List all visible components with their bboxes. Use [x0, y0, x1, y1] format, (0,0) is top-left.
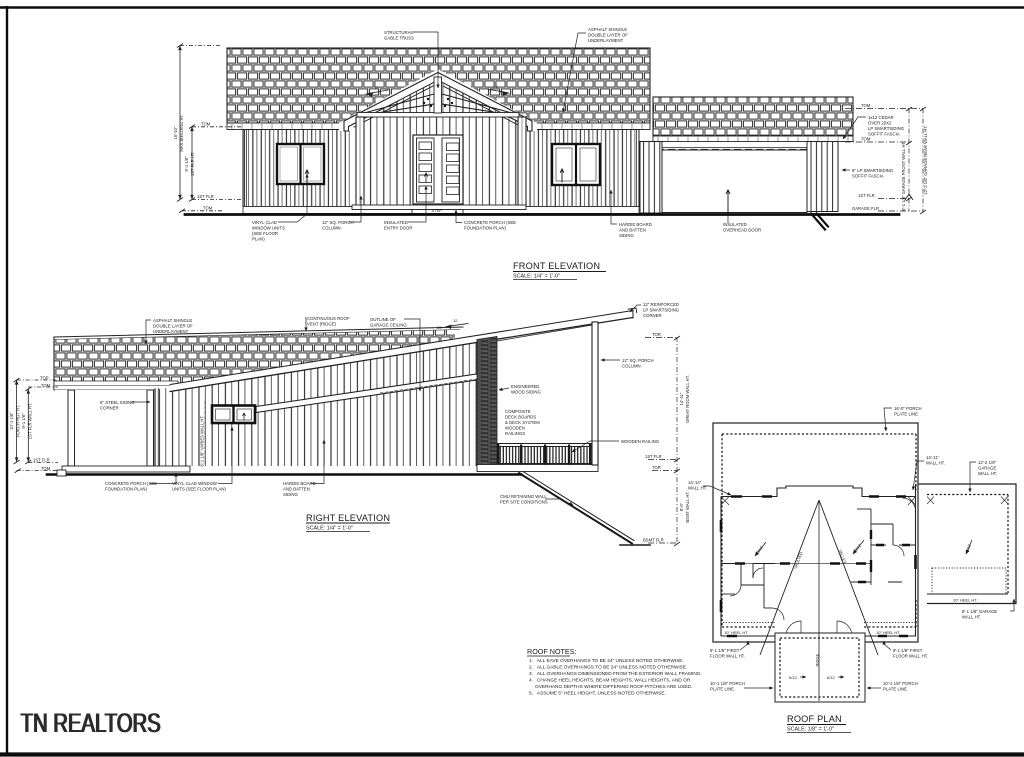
- svg-text:RAILINGS: RAILINGS: [505, 431, 525, 436]
- svg-text:PLATE LINE: PLATE LINE: [710, 687, 734, 692]
- svg-text:FOUNDATION PLAN): FOUNDATION PLAN): [464, 226, 507, 231]
- svg-text:1ST FLR: 1ST FLR: [33, 458, 50, 463]
- svg-text:ASPHALT SHINGLE: ASPHALT SHINGLE: [588, 27, 627, 32]
- svg-text:WOODEN: WOODEN: [505, 426, 525, 431]
- svg-text:DECK BOARDS: DECK BOARDS: [505, 415, 536, 420]
- svg-text:9'-1 1/8" FIRST: 9'-1 1/8" FIRST: [710, 648, 740, 653]
- svg-text:GARAGE: GARAGE: [978, 466, 997, 471]
- svg-text:OVERHANG DEPTHS WHERE DIFFERIN: OVERHANG DEPTHS WHERE DIFFERING ROOF PIT…: [535, 684, 692, 690]
- svg-text:SCALE: 1/8" = 1'-0": SCALE: 1/8" = 1'-0": [787, 727, 834, 733]
- svg-text:UNITS (SEE FLOOR PLAN): UNITS (SEE FLOOR PLAN): [172, 487, 227, 492]
- svg-text:3. ALL OVERHANGS DIMENSIONED: 3. ALL OVERHANGS DIMENSIONED FROM THE EX…: [529, 671, 702, 677]
- svg-text:10'-1 1/8" PORCH: 10'-1 1/8" PORCH: [710, 681, 745, 686]
- svg-text:10" HEEL HT.: 10" HEEL HT.: [953, 598, 977, 603]
- svg-text:STEP: STEP: [432, 208, 443, 213]
- svg-text:UNDERLAYMENT: UNDERLAYMENT: [588, 38, 624, 43]
- svg-text:12'-2 1/8": 12'-2 1/8": [978, 460, 997, 465]
- svg-text:TOR: TOR: [652, 465, 661, 470]
- svg-text:ROOF PLAN: ROOF PLAN: [787, 714, 842, 724]
- svg-text:GARAGE FLR: GARAGE FLR: [852, 206, 879, 211]
- svg-text:12: 12: [453, 318, 458, 323]
- svg-text:10'-1 1/8" PORCH: 10'-1 1/8" PORCH: [883, 681, 918, 686]
- svg-text:12" SQ. PORCH: 12" SQ. PORCH: [622, 358, 654, 363]
- svg-text:SCALE: 1/4" = 1'-0": SCALE: 1/4" = 1'-0": [306, 526, 353, 532]
- svg-text:9'-1 1/8": 9'-1 1/8": [21, 413, 26, 429]
- svg-text:8'-1 1/8" VARIES WALL HT.: 8'-1 1/8" VARIES WALL HT.: [200, 415, 205, 466]
- svg-text:TOM: TOM: [203, 206, 213, 211]
- svg-text:CONTINUOUS ROOF: CONTINUOUS ROOF: [307, 316, 350, 321]
- svg-text:VINYL CLAD WINDOW: VINYL CLAD WINDOW: [172, 481, 218, 486]
- svg-text:6/12: 6/12: [827, 675, 836, 680]
- svg-text:STRUCTURAL: STRUCTURAL: [384, 30, 413, 35]
- svg-text:16'-10": 16'-10": [173, 126, 178, 140]
- svg-text:PLAN): PLAN): [252, 237, 265, 242]
- svg-text:SIDING: SIDING: [283, 492, 298, 497]
- svg-text:HARDIE BOARD: HARDIE BOARD: [619, 222, 652, 227]
- svg-text:MAX BUILDING HT.: MAX BUILDING HT.: [179, 114, 184, 151]
- svg-text:CORNER: CORNER: [100, 406, 119, 411]
- svg-text:(SEE FLOOR: (SEE FLOOR: [252, 231, 278, 236]
- svg-text:PLATE LINE: PLATE LINE: [883, 687, 907, 692]
- svg-text:TOM: TOM: [861, 103, 871, 108]
- svg-text:INSULATED: INSULATED: [723, 222, 747, 227]
- svg-text:COLUMN: COLUMN: [322, 226, 341, 231]
- svg-text:VINYL CLAD: VINYL CLAD: [252, 220, 277, 225]
- svg-text:UNDERLAYMENT: UNDERLAYMENT: [153, 329, 189, 334]
- svg-text:DOUBLE LAYER OF: DOUBLE LAYER OF: [588, 33, 628, 38]
- svg-text:FLOOR WALL HT.: FLOOR WALL HT.: [710, 654, 745, 659]
- svg-text:ENGINEERED: ENGINEERED: [511, 384, 539, 389]
- svg-text:CORNER: CORNER: [643, 313, 662, 318]
- svg-text:FRONT ELEVATION: FRONT ELEVATION: [513, 261, 600, 271]
- svg-text:1ST FLR WALL HT.: 1ST FLR WALL HT.: [28, 403, 33, 439]
- svg-text:5. ASSUME 5" HEEL HEIGHT, UN: 5. ASSUME 5" HEEL HEIGHT, UNLESS NOTED O…: [529, 691, 666, 697]
- svg-text:ENTRY DOOR: ENTRY DOOR: [384, 226, 413, 231]
- svg-text:FLOOR WALL HT.: FLOOR WALL HT.: [893, 654, 928, 659]
- svg-text:TOM: TOM: [201, 122, 211, 127]
- svg-text:WINDOW UNITS: WINDOW UNITS: [252, 226, 285, 231]
- svg-text:FOUNDATION PLAN): FOUNDATION PLAN): [105, 487, 148, 492]
- svg-text:VENT (RIDGE): VENT (RIDGE): [307, 322, 337, 327]
- svg-text:1x12 CEDAR: 1x12 CEDAR: [868, 115, 894, 120]
- svg-text:INSULATED: INSULATED: [384, 220, 408, 225]
- svg-text:WALL HT.: WALL HT.: [978, 471, 997, 476]
- svg-text:TN REALTORS: TN REALTORS: [21, 708, 161, 738]
- svg-text:1ST FLR HT.: 1ST FLR HT.: [190, 152, 195, 176]
- svg-text:12: 12: [374, 85, 379, 90]
- svg-text:8'-0": 8'-0": [679, 502, 684, 511]
- svg-text:WALL HT.: WALL HT.: [926, 461, 945, 466]
- svg-text:4. CHANGE HEEL HEIGHTS, BEAM: 4. CHANGE HEEL HEIGHTS, BEAM HEIGHTS, WA…: [529, 678, 691, 684]
- svg-text:COLUMN: COLUMN: [622, 364, 641, 369]
- svg-text:& DECK SYSTEM: & DECK SYSTEM: [505, 420, 540, 425]
- svg-text:SOFFIT FASCIA: SOFFIT FASCIA: [852, 174, 884, 179]
- svg-text:GARAGE CEILING: GARAGE CEILING: [370, 323, 407, 328]
- svg-text:WALL HT.: WALL HT.: [962, 615, 981, 620]
- svg-text:14'-11": 14'-11": [926, 455, 939, 460]
- svg-text:CONCRETE PORCH (SEE: CONCRETE PORCH (SEE: [464, 220, 516, 225]
- svg-text:TOM: TOM: [41, 383, 51, 388]
- svg-text:ROOF NOTES:: ROOF NOTES:: [527, 647, 577, 656]
- svg-text:9'-1 1/8" FIRST: 9'-1 1/8" FIRST: [893, 648, 923, 653]
- svg-text:CMU RETAINING WALL: CMU RETAINING WALL: [500, 494, 547, 499]
- svg-text:COMPOSITE: COMPOSITE: [505, 409, 531, 414]
- svg-text:1ST FLR: 1ST FLR: [858, 193, 875, 198]
- svg-text:BSMT FLR: BSMT FLR: [643, 538, 664, 543]
- svg-text:8" STEEL SIDING: 8" STEEL SIDING: [100, 400, 135, 405]
- svg-text:14'-14": 14'-14": [688, 480, 702, 485]
- svg-text:LP SMARTSIDING: LP SMARTSIDING: [868, 126, 905, 131]
- svg-text:12" SQ. PORCH: 12" SQ. PORCH: [322, 220, 354, 225]
- svg-text:16'-0" PORCH: 16'-0" PORCH: [894, 406, 922, 411]
- svg-text:WOODEN RAILING: WOODEN RAILING: [621, 439, 660, 444]
- svg-text:8" LP SMARTSIDING: 8" LP SMARTSIDING: [852, 168, 894, 173]
- svg-text:SIDING: SIDING: [619, 233, 634, 238]
- svg-text:TOM: TOM: [861, 137, 871, 142]
- svg-text:TOM: TOM: [41, 466, 51, 471]
- svg-text:ASPHALT SHINGLE: ASPHALT SHINGLE: [153, 318, 192, 323]
- svg-text:9'-1 1/8": 9'-1 1/8": [184, 156, 189, 172]
- svg-text:GABLE TRUSS: GABLE TRUSS: [384, 36, 414, 41]
- svg-text:12" REINFORCED: 12" REINFORCED: [643, 302, 679, 307]
- svg-text:8'-1 1/8" GARAGE: 8'-1 1/8" GARAGE: [962, 609, 997, 614]
- svg-text:AND BATTEN: AND BATTEN: [283, 487, 310, 492]
- svg-text:AND BATTEN: AND BATTEN: [619, 228, 646, 233]
- svg-text:RIGHT ELEVATION: RIGHT ELEVATION: [306, 513, 390, 523]
- svg-text:1ST FLR: 1ST FLR: [645, 454, 662, 459]
- svg-text:PER SITE CONDITIONS: PER SITE CONDITIONS: [500, 500, 548, 505]
- svg-text:1ST FLR: 1ST FLR: [197, 194, 214, 199]
- svg-text:1. ALL EAVE OVERHANGS TO BE: 1. ALL EAVE OVERHANGS TO BE 24" UNLESS N…: [529, 658, 684, 664]
- svg-text:SCALE: 1/4" = 1'-0": SCALE: 1/4" = 1'-0": [513, 274, 560, 280]
- svg-text:RIDGE: RIDGE: [815, 654, 820, 667]
- svg-text:BSMT WALL HT.: BSMT WALL HT.: [685, 491, 690, 522]
- svg-text:6/12: 6/12: [789, 675, 798, 680]
- svg-text:PLATE LINE: PLATE LINE: [894, 412, 918, 417]
- svg-text:12'-2 1/8" GARAGE REAR WALL HT: 12'-2 1/8" GARAGE REAR WALL HT.: [923, 125, 928, 194]
- svg-text:12: 12: [493, 84, 498, 89]
- svg-text:OUTLINE OF: OUTLINE OF: [370, 317, 396, 322]
- svg-text:GREAT ROOM WALL HT.: GREAT ROOM WALL HT.: [685, 375, 690, 423]
- svg-text:TOP: TOP: [40, 376, 49, 381]
- svg-text:SOFFIT FASCIA: SOFFIT FASCIA: [868, 132, 900, 137]
- svg-text:WOOD SIDING: WOOD SIDING: [511, 390, 541, 395]
- svg-text:PORCH HGT HT.: PORCH HGT HT.: [16, 405, 21, 438]
- svg-text:OVER 20X2: OVER 20X2: [868, 121, 892, 126]
- svg-text:14'-11": 14'-11": [679, 392, 684, 405]
- svg-text:LP SMARTSIDING: LP SMARTSIDING: [643, 308, 680, 313]
- svg-text:DOUBLE LAYER OF: DOUBLE LAYER OF: [153, 324, 193, 329]
- svg-text:10'-1 1/8": 10'-1 1/8": [9, 412, 14, 430]
- svg-text:TOR: TOR: [652, 332, 661, 337]
- svg-text:OVERHEAD DOOR: OVERHEAD DOOR: [723, 228, 761, 233]
- svg-text:2. ALL GABLE OVERHANGS TO BE: 2. ALL GABLE OVERHANGS TO BE 24" UNLESS …: [529, 665, 687, 671]
- svg-text:HARDIE BOARD: HARDIE BOARD: [283, 481, 316, 486]
- svg-text:10" HEEL HT.: 10" HEEL HT.: [724, 630, 748, 635]
- svg-text:CONCRETE PORCH (SEE: CONCRETE PORCH (SEE: [105, 481, 157, 486]
- svg-text:20: 20: [437, 325, 442, 330]
- svg-text:10" HEEL HT.: 10" HEEL HT.: [876, 630, 900, 635]
- svg-text:8'-1 1/8" GARAGE FRONT WALL HT: 8'-1 1/8" GARAGE FRONT WALL HT.: [901, 141, 906, 211]
